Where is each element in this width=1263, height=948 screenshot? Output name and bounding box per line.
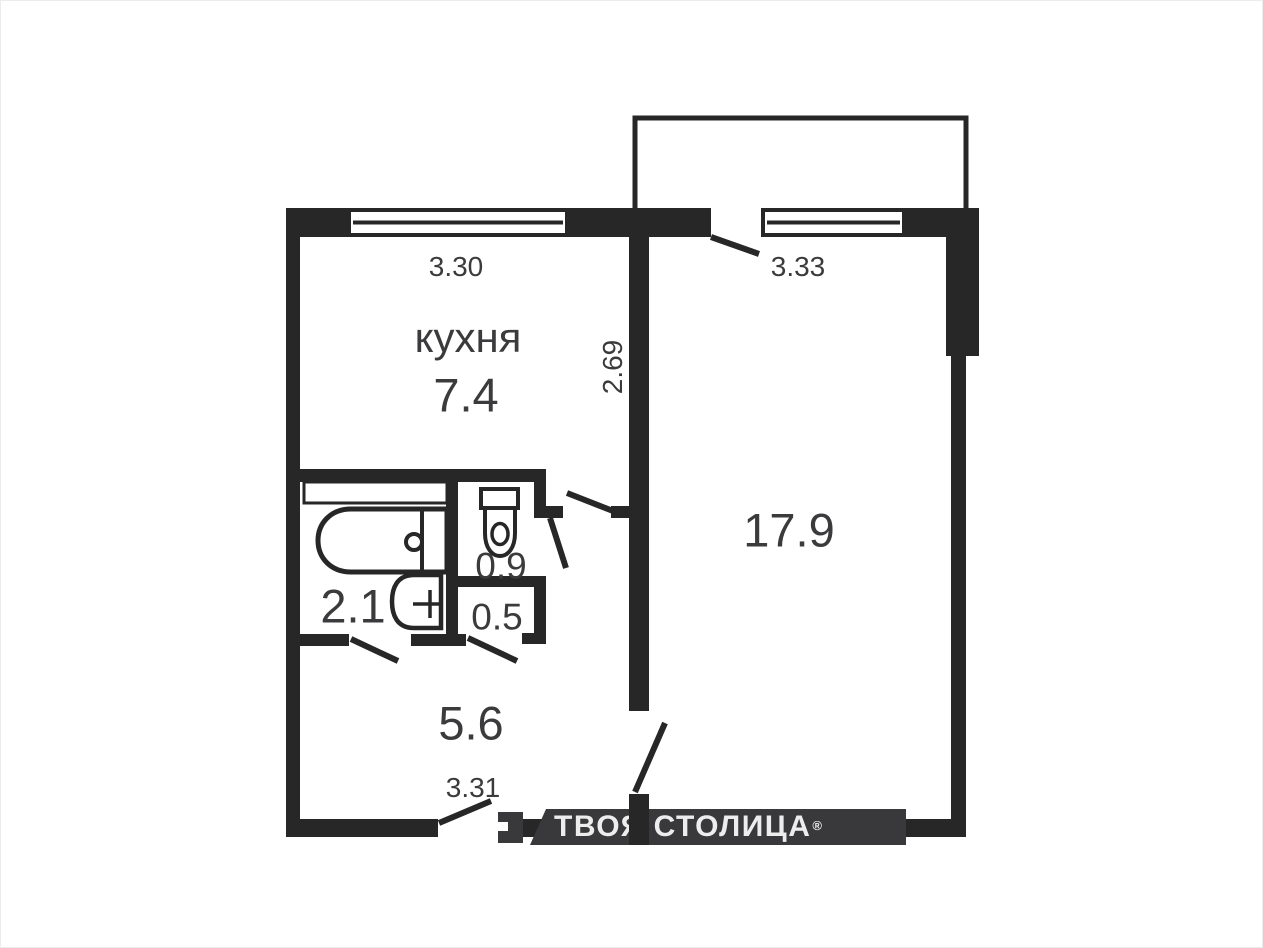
- kitchen-room-label: кухня: [415, 317, 522, 359]
- bathtub-drain-icon: [406, 534, 422, 550]
- kitchen-depth-dimension: 2.69: [599, 340, 627, 395]
- sink-icon: [392, 575, 441, 628]
- wc-area-label: 0.9: [475, 548, 526, 585]
- storage-bottom-wall-stub: [522, 633, 546, 644]
- bathroom-bottom-wall-left: [300, 634, 349, 646]
- entrance-door-leaf: [439, 801, 491, 823]
- top-wall-kitchen-left-segment: [286, 208, 353, 237]
- right-exterior-wall-upper: [946, 208, 979, 356]
- watermark-text: ТВОЯ СТОЛИЦА: [554, 812, 811, 842]
- balcony-door-leaf: [711, 237, 759, 254]
- kitchen-door-wall-stub: [611, 506, 629, 518]
- wc-door-wall-stub: [534, 506, 563, 518]
- watermark-registered-mark: ®: [812, 818, 822, 833]
- bathroom-block-top-wall: [300, 469, 546, 482]
- kitchen-door-leaf: [567, 493, 613, 511]
- bathtub-icon: [318, 509, 447, 572]
- wc-door-leaf: [550, 518, 566, 568]
- watermark-bar: ТВОЯ СТОЛИЦА®: [530, 809, 906, 845]
- left-exterior-wall: [286, 208, 300, 837]
- middle-partition-wall: [629, 208, 649, 711]
- toilet-tank-icon: [481, 489, 518, 508]
- storage-area-label: 0.5: [471, 599, 522, 636]
- hall-area-label: 5.6: [438, 700, 503, 747]
- right-exterior-wall-lower: [951, 354, 966, 837]
- floor-plan-drawing: [1, 1, 1263, 948]
- bath-counter-icon: [304, 482, 447, 503]
- hall-width-dimension: 3.31: [446, 774, 501, 802]
- bath-area-label: 2.1: [320, 583, 385, 630]
- agency-logo-notch: [498, 822, 508, 831]
- agency-watermark: ТВОЯ СТОЛИЦА®: [498, 809, 906, 845]
- bottom-wall-left-segment: [286, 819, 438, 837]
- floor-plan-image: 3.30 3.33 2.69 3.31 кухня 7.4 17.9 2.1 0…: [0, 0, 1263, 948]
- agency-logo-icon: [498, 812, 523, 843]
- wall-stub-over-watermark: [629, 809, 649, 845]
- living-width-dimension: 3.33: [771, 253, 826, 281]
- kitchen-width-dimension: 3.30: [429, 253, 484, 281]
- living-area-label: 17.9: [743, 507, 834, 554]
- kitchen-area-label: 7.4: [433, 372, 498, 419]
- storage-door-leaf: [468, 638, 517, 661]
- toilet-bowl-inner-icon: [492, 524, 508, 545]
- bathroom-bottom-wall-right: [411, 634, 466, 646]
- balcony-outline: [635, 118, 966, 208]
- living-door-leaf: [635, 723, 665, 792]
- bath-door-leaf: [351, 639, 398, 661]
- wc-right-wall-upper: [534, 482, 546, 508]
